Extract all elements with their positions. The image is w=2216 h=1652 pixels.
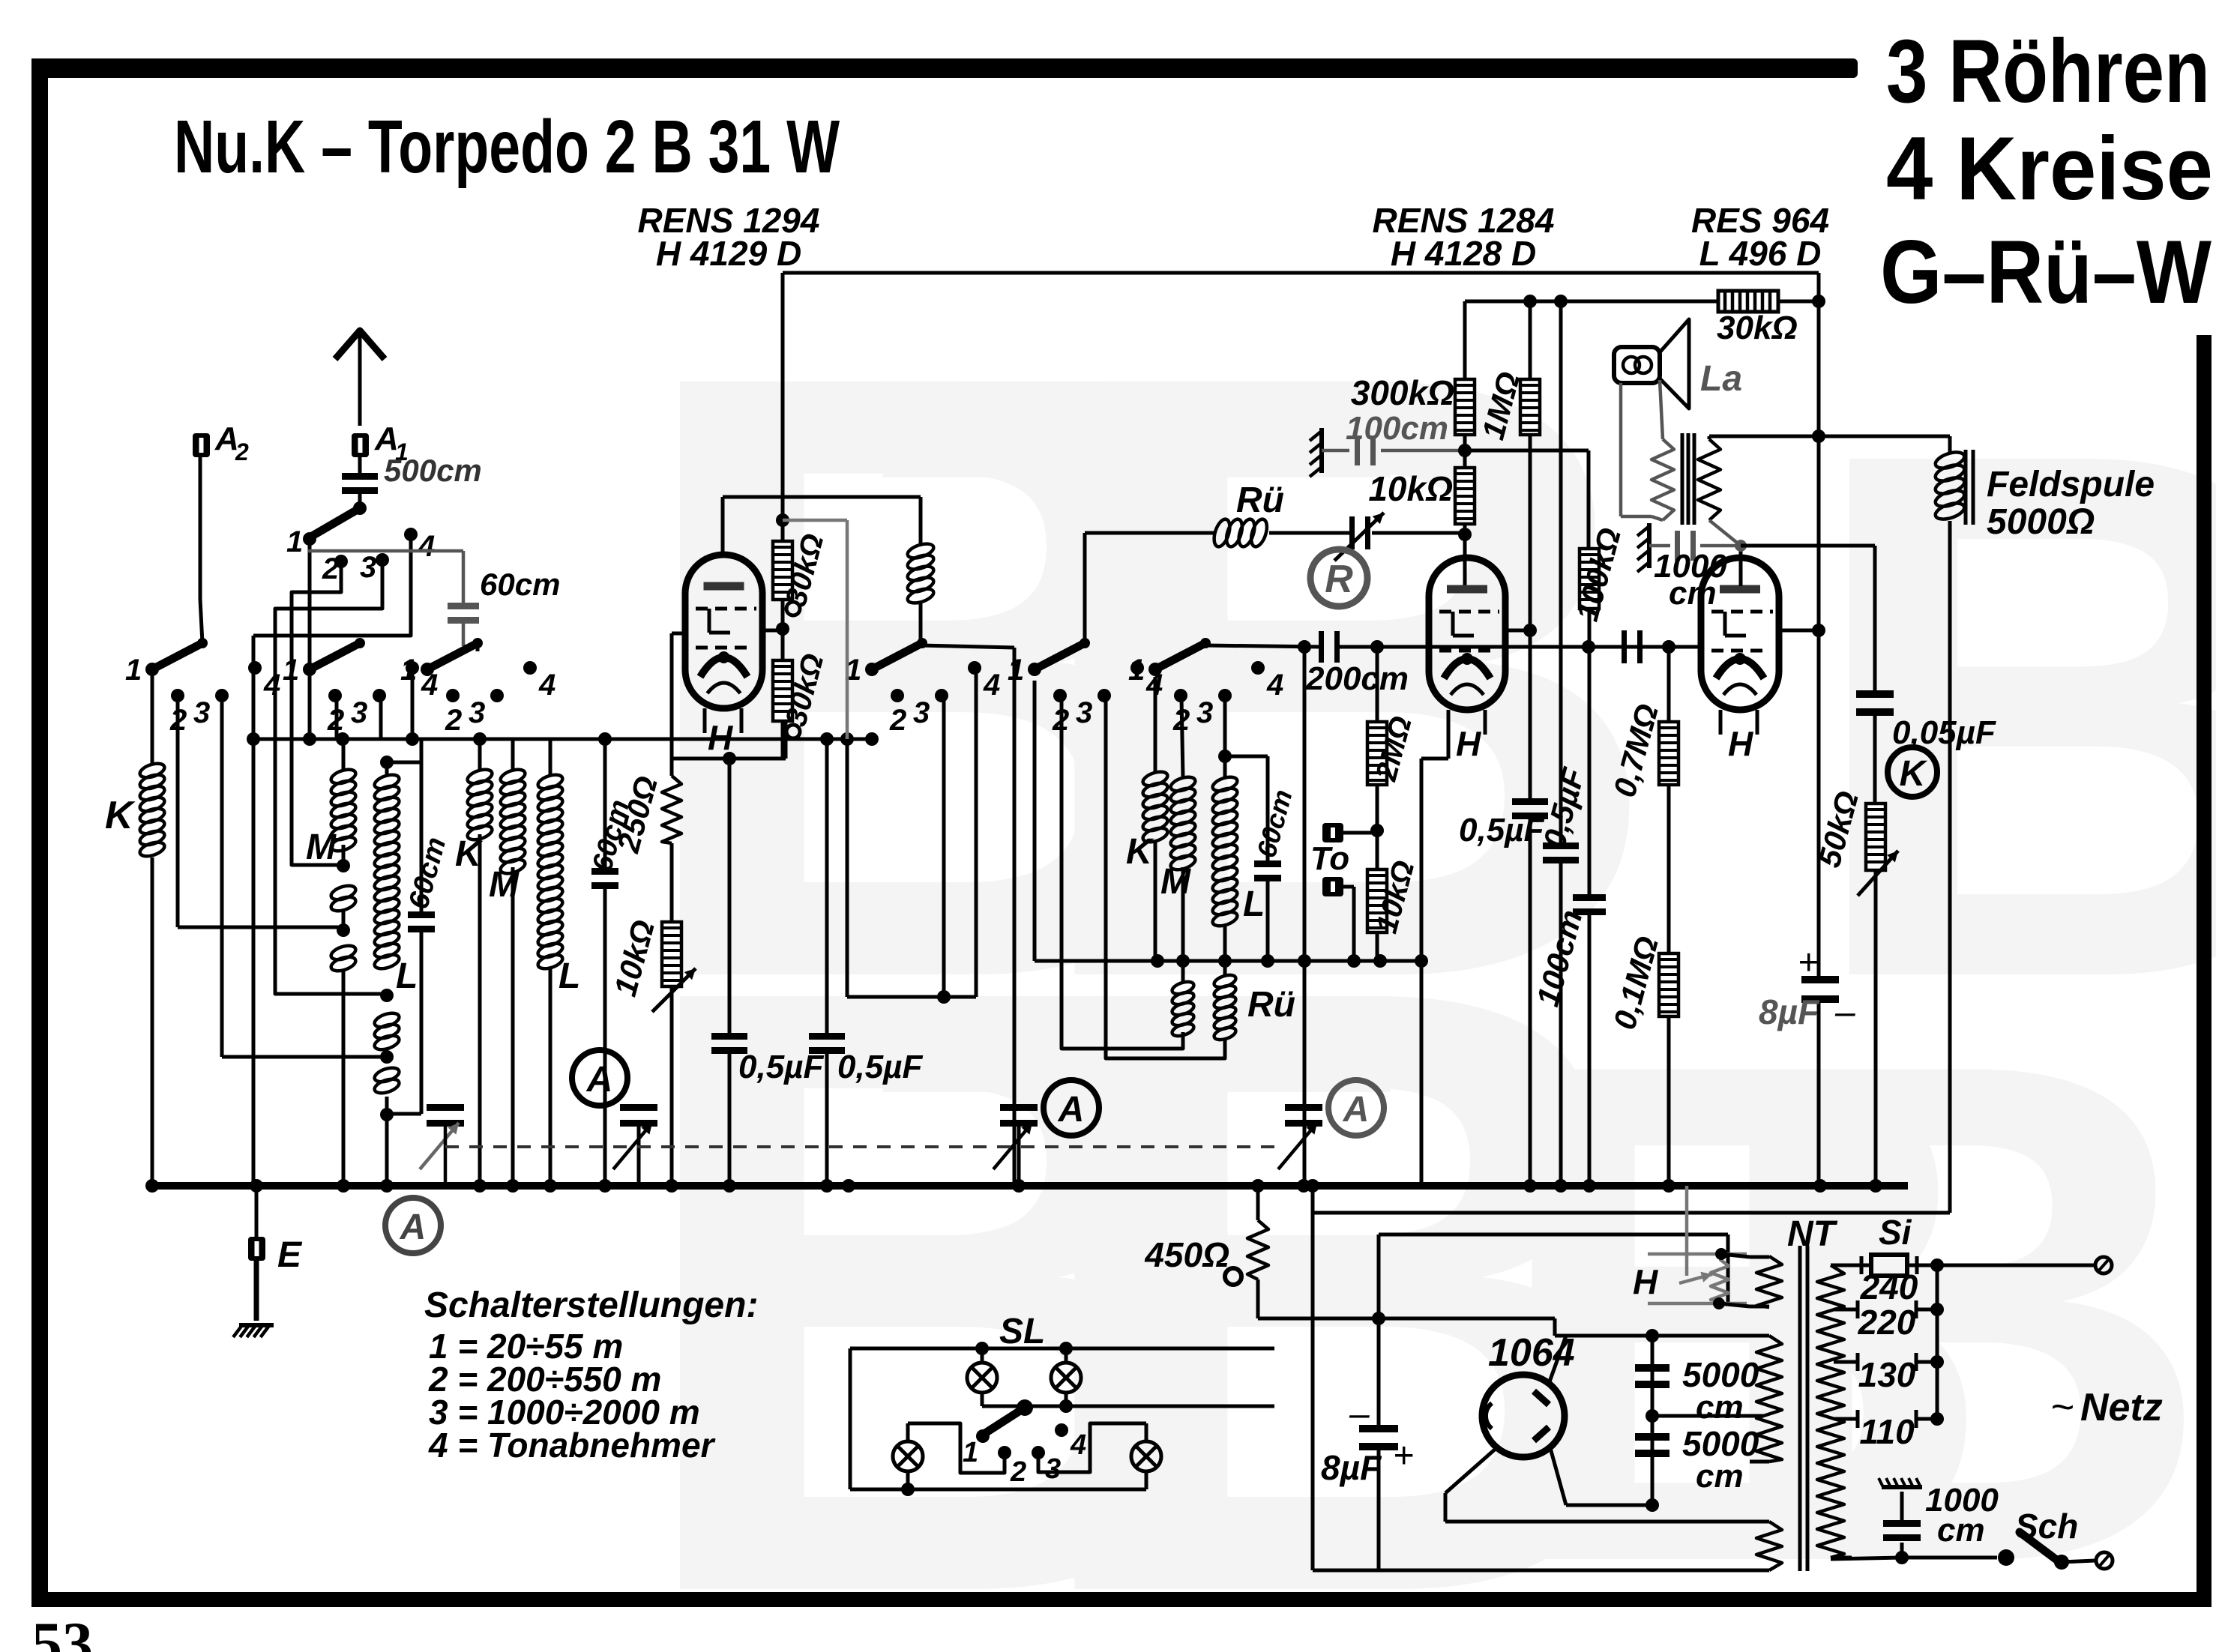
svg-text:L 496 D: L 496 D: [1699, 234, 1822, 273]
svg-text:220: 220: [1858, 1303, 1916, 1342]
svg-text:8µF: 8µF: [1321, 1448, 1382, 1487]
svg-text:110: 110: [1859, 1412, 1915, 1451]
svg-text:–: –: [1834, 992, 1855, 1032]
svg-text:500cm: 500cm: [384, 453, 482, 488]
svg-text:1: 1: [125, 654, 142, 687]
svg-text:450Ω: 450Ω: [1144, 1235, 1229, 1274]
svg-text:M: M: [489, 865, 520, 905]
svg-text:cm: cm: [1696, 1458, 1744, 1495]
svg-text:4: 4: [263, 669, 280, 702]
svg-text:1: 1: [1128, 654, 1145, 687]
svg-text:3: 3: [360, 551, 376, 584]
svg-text:1: 1: [286, 525, 303, 558]
svg-text:10kΩ: 10kΩ: [1368, 469, 1453, 508]
svg-text:0,5µF: 0,5µF: [1459, 812, 1545, 848]
svg-text:1: 1: [1008, 654, 1024, 687]
svg-text:–: –: [1349, 1394, 1370, 1434]
svg-text:K: K: [1900, 754, 1928, 794]
svg-text:130: 130: [1858, 1355, 1916, 1394]
svg-text:E: E: [277, 1235, 303, 1275]
svg-text:Netz: Netz: [2080, 1386, 2163, 1429]
svg-text:M: M: [1160, 862, 1191, 902]
svg-text:Schalterstellungen:: Schalterstellungen:: [424, 1285, 758, 1325]
svg-text:SL: SL: [999, 1312, 1045, 1351]
svg-text:M: M: [306, 827, 337, 867]
svg-text:K: K: [105, 794, 136, 837]
svg-text:2: 2: [445, 704, 462, 737]
svg-text:0,5µF: 0,5µF: [837, 1049, 924, 1085]
svg-text:4: 4: [983, 669, 1000, 702]
svg-text:R: R: [1325, 558, 1353, 601]
svg-text:8µF: 8µF: [1759, 992, 1820, 1031]
svg-text:4: 4: [1266, 669, 1283, 702]
svg-text:4 = Tonabnehmer: 4 = Tonabnehmer: [428, 1426, 716, 1465]
svg-text:H 4128 D: H 4128 D: [1391, 234, 1536, 273]
svg-text:3: 3: [1196, 696, 1213, 729]
svg-text:3: 3: [351, 696, 367, 729]
svg-text:G–Rü–W: G–Rü–W: [1880, 222, 2212, 322]
svg-text:cm: cm: [1669, 575, 1717, 612]
svg-text:5000Ω: 5000Ω: [1987, 502, 2095, 542]
svg-text:53: 53: [31, 1609, 93, 1652]
svg-text:+: +: [1393, 1436, 1414, 1476]
svg-text:L: L: [1243, 884, 1265, 924]
svg-text:H: H: [1633, 1262, 1658, 1301]
svg-text:H: H: [708, 718, 733, 757]
svg-text:cm: cm: [1696, 1389, 1744, 1426]
svg-text:30kΩ: 30kΩ: [1717, 310, 1798, 346]
svg-text:3: 3: [1045, 1453, 1061, 1485]
svg-text:240: 240: [1860, 1267, 1918, 1306]
svg-text:2: 2: [235, 438, 249, 465]
svg-text:K: K: [1126, 832, 1154, 872]
svg-text:0,5µF: 0,5µF: [738, 1049, 825, 1085]
svg-text:1: 1: [400, 654, 417, 687]
svg-text:1: 1: [283, 654, 299, 687]
svg-text:2: 2: [889, 704, 906, 737]
svg-text:NT: NT: [1787, 1214, 1838, 1254]
svg-text:3: 3: [1076, 696, 1092, 729]
svg-text:300kΩ: 300kΩ: [1351, 373, 1454, 412]
svg-text:A: A: [1058, 1090, 1085, 1130]
svg-text:60cm: 60cm: [480, 567, 560, 602]
svg-text:H: H: [1456, 724, 1481, 763]
svg-text:Rü: Rü: [1236, 480, 1284, 520]
svg-text:cm: cm: [1937, 1512, 1985, 1549]
svg-text:A: A: [1343, 1090, 1370, 1130]
svg-text:3: 3: [469, 696, 485, 729]
svg-text:1: 1: [963, 1437, 978, 1468]
svg-text:2: 2: [322, 552, 339, 585]
svg-text:H: H: [1728, 724, 1753, 763]
svg-text:200cm: 200cm: [1305, 660, 1409, 697]
svg-text:1064: 1064: [1488, 1331, 1575, 1375]
svg-text:4: 4: [538, 669, 555, 702]
svg-text:100cm: 100cm: [1346, 410, 1448, 447]
svg-text:Feldspule: Feldspule: [1987, 465, 2155, 504]
svg-text:A: A: [400, 1208, 427, 1247]
svg-text:H 4129 D: H 4129 D: [656, 234, 801, 273]
svg-text:4: 4: [418, 530, 435, 563]
svg-text:K: K: [455, 834, 484, 874]
svg-text:L: L: [558, 956, 580, 996]
svg-text:A: A: [586, 1060, 613, 1100]
svg-text:+: +: [1798, 943, 1819, 983]
svg-text:To: To: [1310, 840, 1349, 877]
svg-text:L: L: [396, 956, 418, 996]
svg-text:3: 3: [193, 696, 210, 729]
svg-text:Rü: Rü: [1247, 985, 1295, 1025]
svg-text:Nu.K – Torpedo 2 B 31 W: Nu.K – Torpedo 2 B 31 W: [174, 105, 840, 189]
svg-text:4: 4: [1070, 1429, 1086, 1461]
svg-text:3 Röhren: 3 Röhren: [1886, 21, 2210, 121]
svg-text:4 Kreise: 4 Kreise: [1886, 118, 2213, 219]
svg-text:La: La: [1700, 359, 1742, 399]
svg-text:Si: Si: [1879, 1213, 1912, 1252]
svg-text:~: ~: [2050, 1384, 2074, 1429]
svg-text:Sch: Sch: [2015, 1507, 2078, 1546]
svg-text:2: 2: [1010, 1456, 1026, 1488]
svg-text:3: 3: [913, 696, 930, 729]
